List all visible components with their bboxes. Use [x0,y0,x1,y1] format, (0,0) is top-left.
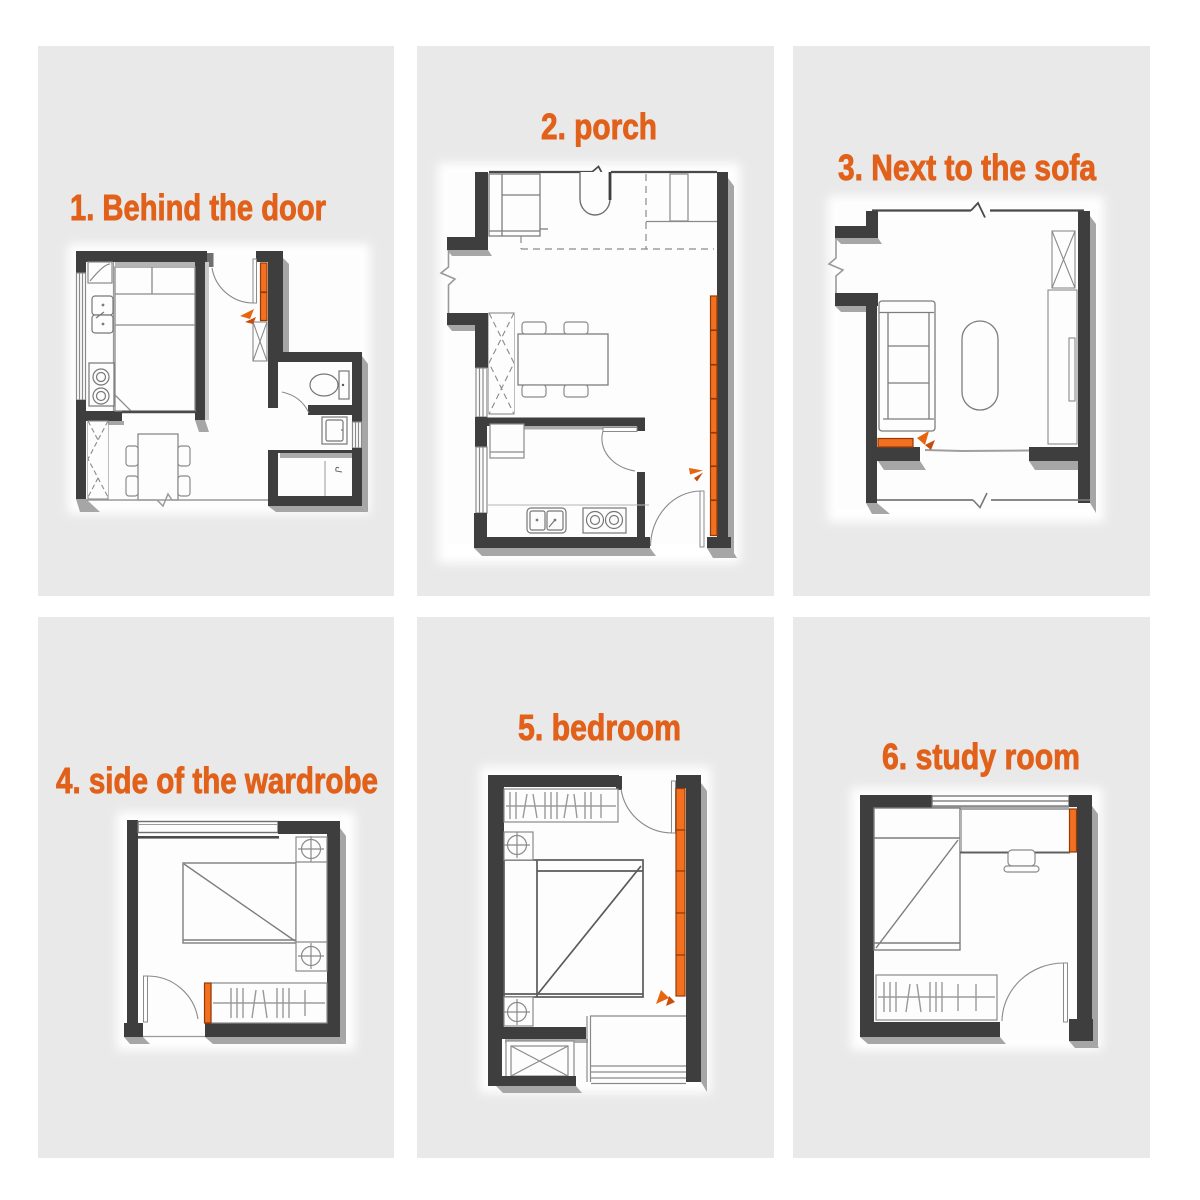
svg-text:1. Behind the door: 1. Behind the door [70,187,326,228]
svg-text:4. side of the wardrobe: 4. side of the wardrobe [56,760,378,801]
svg-text:3. Next to the sofa: 3. Next to the sofa [838,147,1097,188]
svg-text:6. study room: 6. study room [882,736,1080,777]
svg-text:2. porch: 2. porch [541,106,657,147]
svg-text:5. bedroom: 5. bedroom [518,707,681,748]
